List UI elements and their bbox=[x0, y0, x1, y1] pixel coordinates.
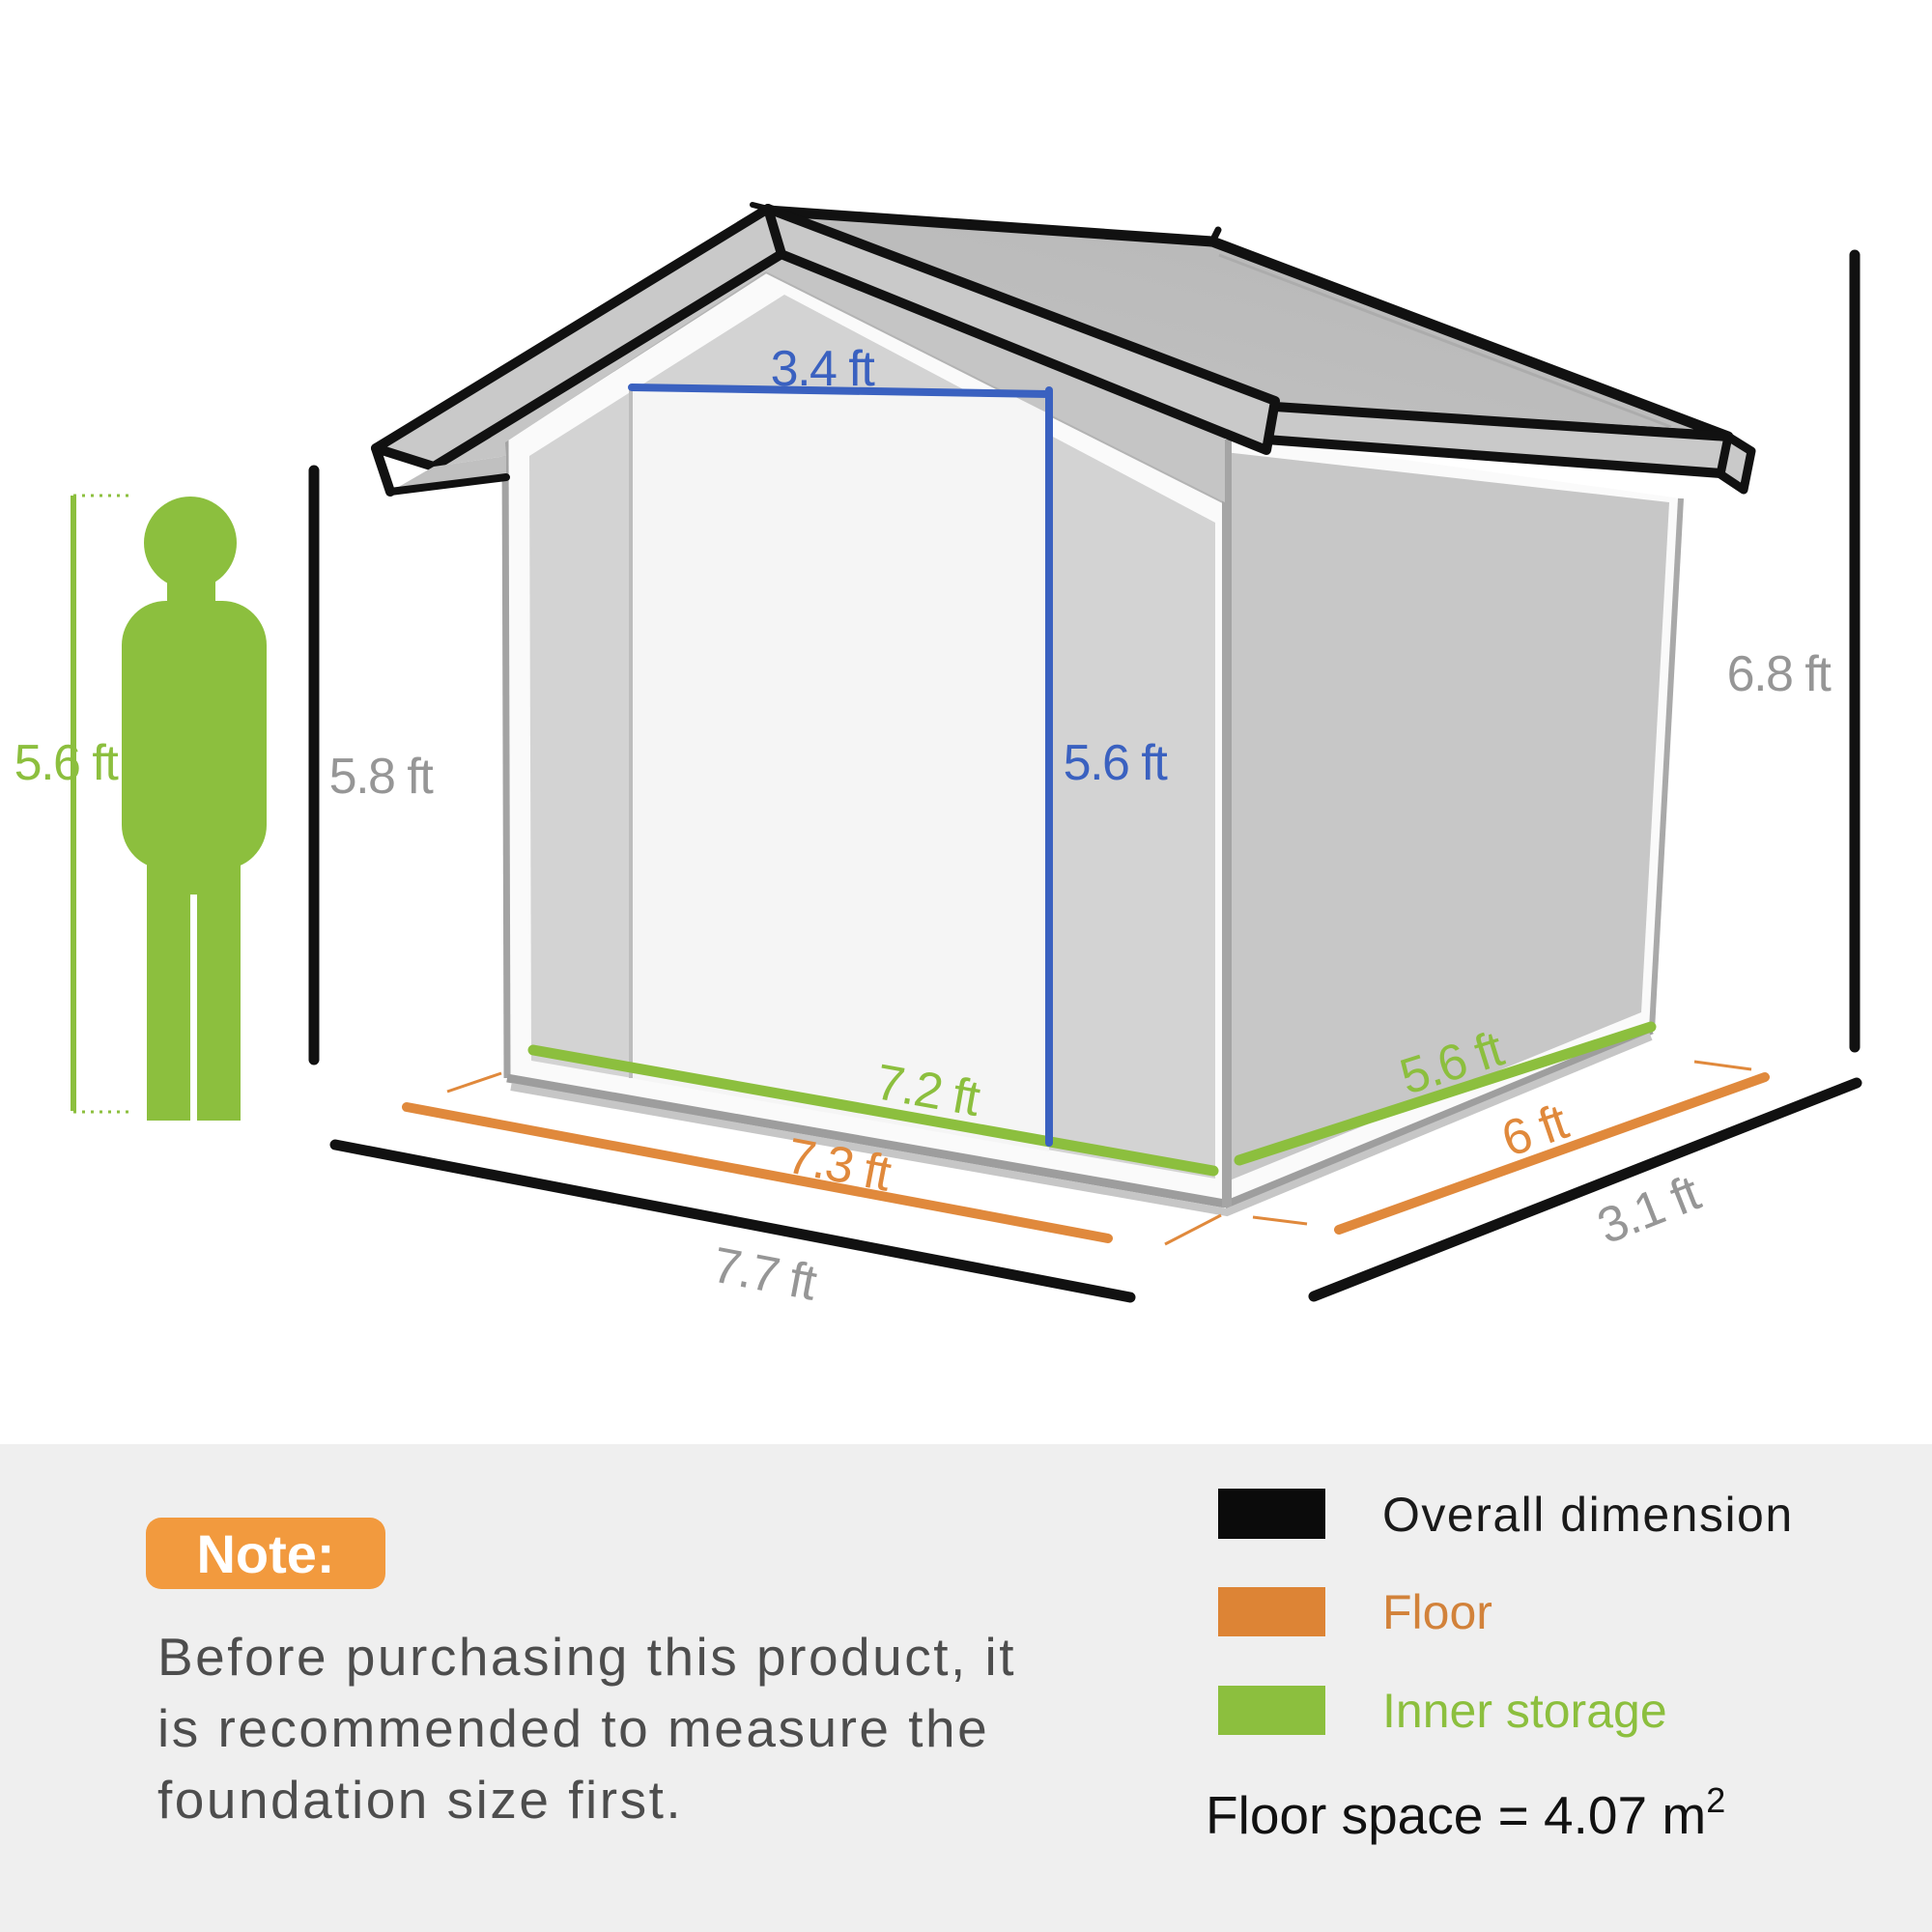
svg-text:5.6 ft: 5.6 ft bbox=[1064, 735, 1169, 791]
svg-text:Overall dimension: Overall dimension bbox=[1382, 1488, 1794, 1542]
svg-text:3.4 ft: 3.4 ft bbox=[771, 341, 876, 397]
svg-text:foundation size first.: foundation size first. bbox=[157, 1770, 683, 1830]
svg-text:is recommended to measure the: is recommended to measure the bbox=[157, 1698, 989, 1758]
svg-text:6.8 ft: 6.8 ft bbox=[1727, 646, 1833, 702]
svg-text:Before purchasing this product: Before purchasing this product, it bbox=[157, 1627, 1016, 1687]
svg-text:5.6 ft: 5.6 ft bbox=[14, 735, 120, 791]
svg-text:Inner storage: Inner storage bbox=[1382, 1684, 1667, 1738]
svg-text:5.8 ft: 5.8 ft bbox=[329, 749, 435, 805]
svg-text:Note:: Note: bbox=[196, 1523, 334, 1584]
svg-text:Floor space = 4.07 m2: Floor space = 4.07 m2 bbox=[1206, 1780, 1725, 1845]
svg-text:Floor: Floor bbox=[1382, 1585, 1492, 1639]
